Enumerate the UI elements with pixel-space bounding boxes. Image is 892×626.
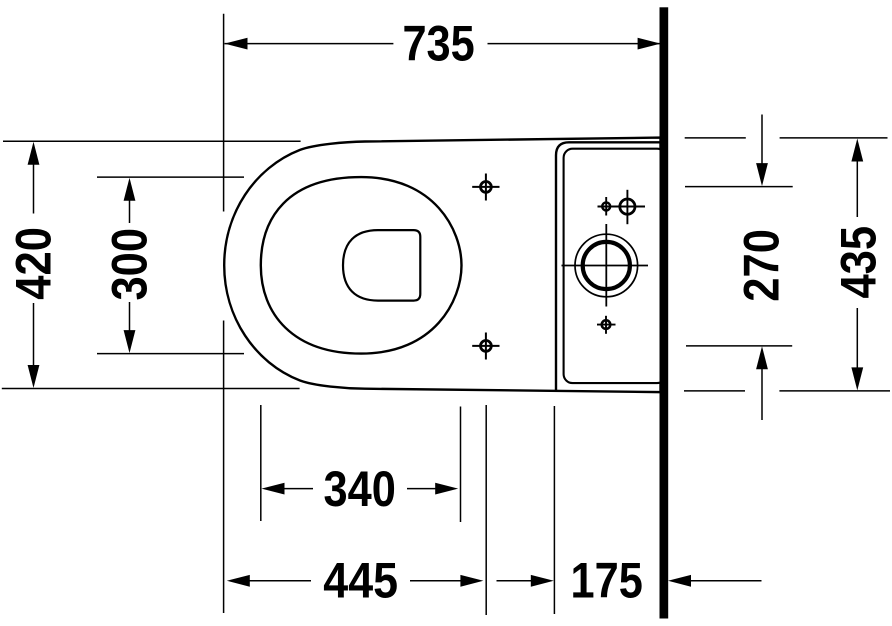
svg-text:445: 445 [323,552,398,608]
svg-text:300: 300 [102,228,158,301]
svg-text:435: 435 [831,226,887,299]
svg-text:735: 735 [402,16,474,72]
svg-text:175: 175 [571,552,643,608]
svg-text:270: 270 [734,229,790,302]
svg-text:340: 340 [324,461,396,517]
svg-text:420: 420 [6,227,62,300]
